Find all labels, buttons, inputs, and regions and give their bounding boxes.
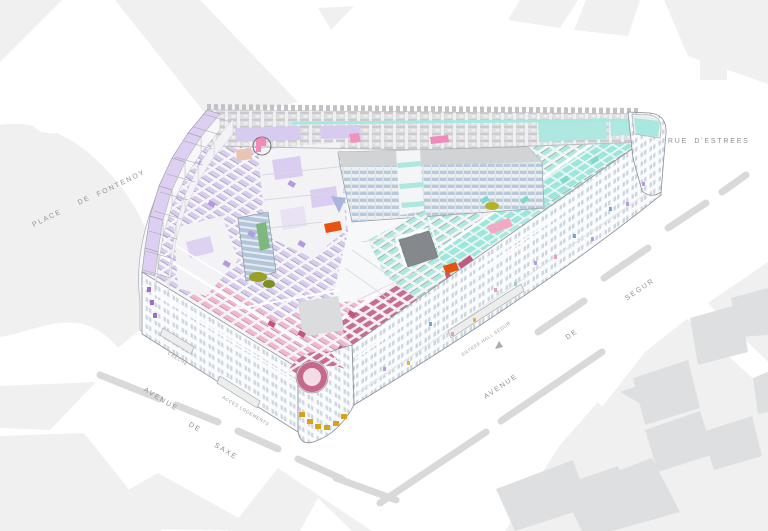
svg-text:D'ESTREES: D'ESTREES (694, 138, 749, 145)
svg-text:RUE: RUE (668, 138, 688, 145)
